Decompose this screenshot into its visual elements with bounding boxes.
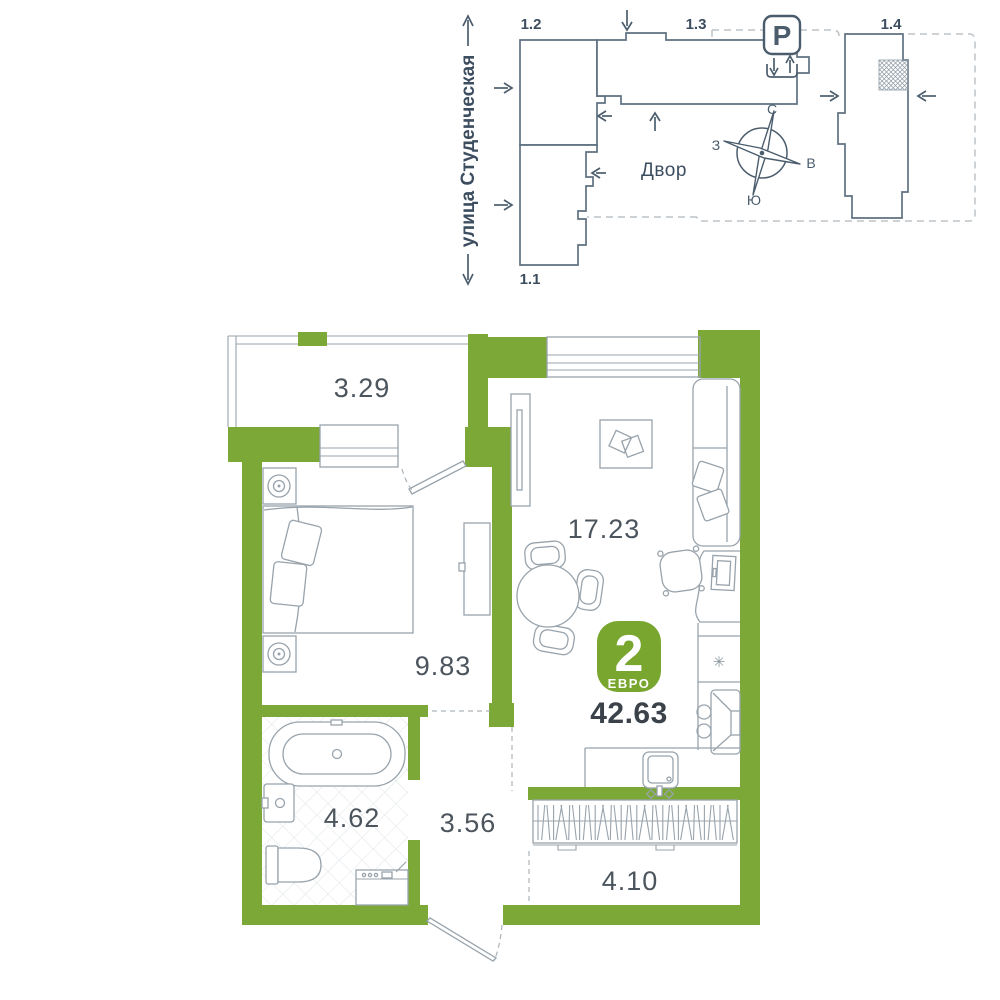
floorplan-page: улица Студенческая 1.2 1.3 1.1 1.4 <box>0 0 1000 1000</box>
stove <box>697 690 740 754</box>
desk <box>696 551 740 622</box>
compass-east-label: В <box>806 155 815 171</box>
street-name-label: улица Студенческая <box>458 55 479 248</box>
laptop <box>711 555 736 590</box>
desk-chair <box>657 546 704 596</box>
compass-center-dot <box>760 151 765 156</box>
wall-bedroom-living-foot <box>489 703 514 727</box>
balcony-wardrobe <box>320 425 398 467</box>
compass-north-label: С <box>767 101 777 117</box>
bedroom-area-label: 9.83 <box>415 651 472 681</box>
kitchen-column: ✳ <box>697 623 740 754</box>
wall-left <box>242 462 262 905</box>
wall-living-top-left <box>488 337 547 378</box>
bathroom-area-label: 4.62 <box>324 803 381 833</box>
wall-corner-bedroom <box>465 427 512 467</box>
site-plan: улица Студенческая 1.2 1.3 1.1 1.4 <box>440 0 1000 300</box>
dining-chair <box>532 623 576 657</box>
street-arrow-up-icon <box>463 16 473 46</box>
building-1-2-outline <box>520 40 605 145</box>
wall-balcony-right <box>468 334 488 427</box>
wall-below-balcony <box>228 427 320 462</box>
wall-bathroom-right-lower <box>408 840 420 905</box>
rooms-count: 2 <box>615 625 644 683</box>
building-label-1-4: 1.4 <box>881 16 903 33</box>
nightstand-top <box>263 468 296 504</box>
double-bed <box>263 506 413 633</box>
wall-balcony-top-segment <box>298 332 327 346</box>
wall-bedroom-living <box>492 462 512 727</box>
living-window <box>547 337 700 377</box>
snowflake-icon: ✳ <box>713 654 726 671</box>
living-area-label: 17.23 <box>568 514 641 544</box>
bedroom-tv-stand <box>459 523 490 615</box>
dining-table <box>517 565 579 627</box>
bedroom <box>263 468 490 672</box>
bedroom-balcony-door <box>402 461 466 494</box>
parking-letter: P <box>773 20 792 51</box>
apartment-location-hatch <box>879 60 908 90</box>
wall-bottom-left <box>242 905 428 925</box>
living-kitchen: ✳ <box>511 379 740 798</box>
hallway-area-label: 3.56 <box>440 808 497 838</box>
hanger-ticks <box>538 805 733 840</box>
courtyard-label: Двор <box>641 160 687 181</box>
building-label-1-2: 1.2 <box>521 16 542 33</box>
wall-right <box>740 330 760 925</box>
building-1-4-group <box>838 34 908 218</box>
bathroom-sink <box>262 784 294 822</box>
wardrobe-area-label: 4.10 <box>602 866 659 896</box>
toilet <box>266 846 321 884</box>
tv-unit <box>511 394 530 506</box>
nightstand-bottom <box>263 636 296 672</box>
street-arrow-down-icon <box>463 254 473 284</box>
dining-set <box>517 540 605 656</box>
compass-west-label: З <box>712 137 720 153</box>
building-label-1-3: 1.3 <box>686 16 707 33</box>
entrance-door <box>427 918 502 961</box>
wall-bathroom-right-upper <box>408 717 420 780</box>
building-1-1-outline <box>520 145 597 265</box>
compass-rose: С Ю З В <box>712 101 816 208</box>
wall-bottom-right <box>503 905 760 925</box>
balcony-area-label: 3.29 <box>334 373 391 403</box>
apartment-plan: ✳ <box>220 320 780 1000</box>
wardrobe-shelf <box>533 845 737 850</box>
street-label-group: улица Студенческая <box>458 16 479 284</box>
bathtub <box>269 720 405 786</box>
coffee-table <box>600 420 652 468</box>
pillow <box>270 561 307 606</box>
sofa <box>692 379 740 546</box>
wall-bathroom-top <box>262 705 428 717</box>
wardrobe-room <box>533 800 737 850</box>
building-label-1-1: 1.1 <box>520 271 541 288</box>
compass-south-label: Ю <box>747 192 761 208</box>
apartment-type-badge: 2 ЕВРО <box>597 621 661 692</box>
total-area-label: 42.63 <box>590 697 668 730</box>
wall-wardrobe-top <box>528 787 740 800</box>
apartment-type-label: ЕВРО <box>608 676 651 691</box>
